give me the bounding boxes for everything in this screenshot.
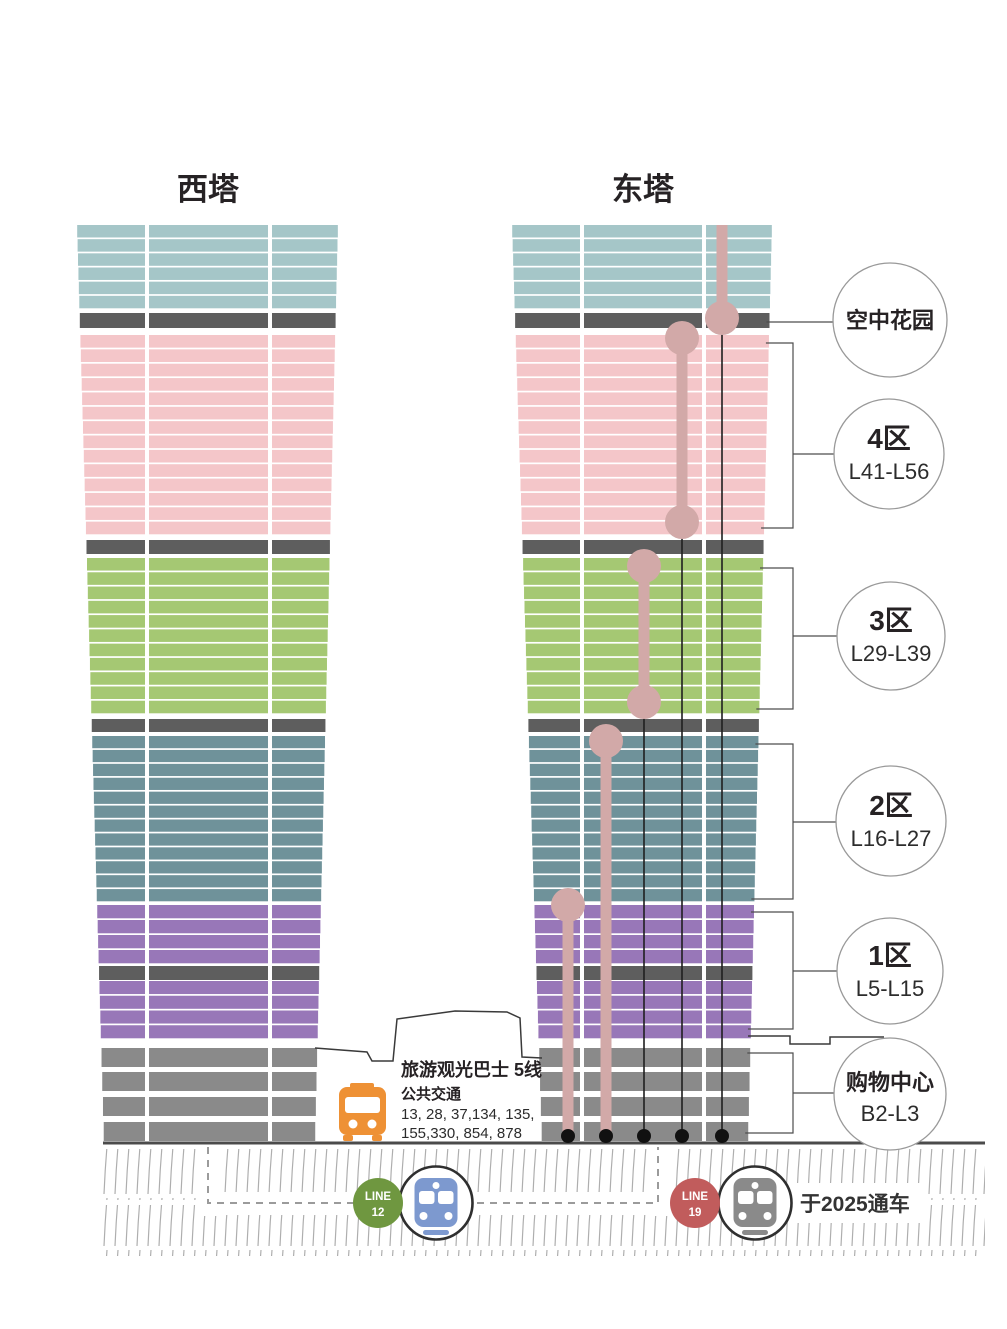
floor-row xyxy=(272,996,318,1009)
sky-garden-band xyxy=(99,966,145,980)
floor-row xyxy=(532,820,580,832)
floor-row xyxy=(100,1011,145,1024)
floor-row xyxy=(83,421,145,434)
floor-row xyxy=(706,736,758,748)
line12-train-icon xyxy=(420,1212,428,1220)
elevator-shaft xyxy=(677,338,688,522)
twin-tower-section-diagram: 西塔 东塔 空中花园 4区 L41-L56 3区 L29-L39 2区 L16-… xyxy=(0,0,1007,1329)
floor-row xyxy=(272,464,332,477)
floor-row xyxy=(78,253,145,265)
floor-row xyxy=(96,875,145,887)
bus-title: 旅游观光巴士 5线 xyxy=(401,1059,542,1080)
floor-row xyxy=(81,364,145,377)
floor-row xyxy=(149,268,268,280)
floor-row xyxy=(706,253,771,265)
floor-row xyxy=(532,833,580,845)
floor-row xyxy=(87,572,145,585)
elevator-stop xyxy=(551,888,585,922)
floor-row xyxy=(91,686,145,699)
floor-row xyxy=(149,349,268,362)
floor-row xyxy=(272,629,328,642)
floor-row xyxy=(81,349,145,362)
floor-row xyxy=(272,905,321,918)
floor-row xyxy=(80,335,145,348)
floor-row xyxy=(272,587,329,600)
floor-row xyxy=(706,778,757,790)
floor-row xyxy=(517,378,580,391)
line19-number: 19 xyxy=(689,1207,702,1219)
floor-row xyxy=(272,239,337,251)
floor-row xyxy=(706,225,772,237)
floor-row xyxy=(84,464,145,477)
floor-row xyxy=(706,629,761,642)
floor-row xyxy=(149,935,268,948)
floor-row xyxy=(272,920,320,933)
west-tower xyxy=(77,225,338,1141)
floor-row xyxy=(272,558,329,571)
floor-row xyxy=(149,1025,268,1038)
floor-row xyxy=(82,378,145,391)
sky-garden-band xyxy=(706,719,759,732)
floor-row xyxy=(272,601,328,614)
floor-row xyxy=(272,847,322,859)
callout-circle-zone1 xyxy=(837,918,943,1024)
ground-dot xyxy=(715,1129,729,1143)
floor-row xyxy=(525,601,580,614)
floor-row xyxy=(149,950,268,963)
floor-row xyxy=(149,981,268,994)
floor-row xyxy=(514,268,580,280)
floor-row xyxy=(706,806,757,818)
floor-row xyxy=(512,225,580,237)
floor-row xyxy=(272,889,321,901)
floor-row xyxy=(272,378,334,391)
podium-band xyxy=(102,1072,145,1091)
floor-row xyxy=(530,778,580,790)
floor-row xyxy=(149,820,268,832)
sky-garden-band xyxy=(149,540,268,554)
floor-row xyxy=(89,615,145,628)
line12-badge xyxy=(353,1178,403,1228)
east-tower-title: 东塔 xyxy=(612,172,675,207)
floor-row xyxy=(90,644,145,657)
podium-band xyxy=(149,1097,268,1116)
callout-mall-label: 购物中心 xyxy=(846,1070,934,1095)
floor-row xyxy=(584,296,702,308)
podium-band xyxy=(149,1048,268,1067)
floor-row xyxy=(149,421,268,434)
floor-row xyxy=(272,686,326,699)
floor-row xyxy=(524,572,580,585)
floor-row xyxy=(706,392,767,405)
floor-row xyxy=(706,792,757,804)
floor-row xyxy=(706,981,752,994)
callout-circles: 空中花园 4区 L41-L56 3区 L29-L39 2区 L16-L27 1区… xyxy=(833,263,947,1150)
floor-row xyxy=(149,644,268,657)
floor-row xyxy=(706,615,762,628)
sky-garden-band xyxy=(80,313,145,328)
bus-icon xyxy=(343,1135,353,1141)
floor-row xyxy=(533,847,580,859)
floor-row xyxy=(272,820,323,832)
floor-row xyxy=(97,905,145,918)
floor-row xyxy=(272,407,333,420)
floor-row xyxy=(706,847,756,859)
elevator-stop xyxy=(665,321,699,355)
floor-row xyxy=(272,253,337,265)
floor-row xyxy=(78,268,145,280)
floor-row xyxy=(149,806,268,818)
line12-train-icon xyxy=(433,1182,440,1189)
floor-row xyxy=(79,282,145,294)
callout-zone2-floors: L16-L27 xyxy=(851,826,932,851)
callout-zone2-name: 2区 xyxy=(869,790,913,821)
floor-row xyxy=(98,920,145,933)
sky-garden-band xyxy=(515,313,580,328)
floor-row xyxy=(584,225,702,237)
line12-train-icon xyxy=(423,1230,449,1235)
floor-row xyxy=(88,587,145,600)
floor-row xyxy=(88,601,145,614)
floor-row xyxy=(519,436,580,449)
floor-row xyxy=(79,296,145,308)
floor-row xyxy=(85,493,145,506)
floor-row xyxy=(96,847,145,859)
bus-icon xyxy=(349,1120,358,1129)
floor-row xyxy=(77,225,145,237)
floor-row xyxy=(149,507,268,520)
callout-zone4-name: 4区 xyxy=(867,423,911,454)
elevator-stop xyxy=(627,549,661,583)
floor-row xyxy=(149,392,268,405)
floor-row xyxy=(149,572,268,585)
podium-band xyxy=(272,1097,316,1116)
floor-row xyxy=(94,806,145,818)
floor-row xyxy=(706,239,771,251)
floor-row xyxy=(706,750,758,762)
floor-row xyxy=(272,644,327,657)
floor-row xyxy=(526,658,580,671)
podium-band xyxy=(706,1097,749,1116)
floor-row xyxy=(272,450,332,463)
callout-zone1-floors: L5-L15 xyxy=(856,976,925,1001)
floor-row xyxy=(706,764,758,776)
floor-row xyxy=(523,558,580,571)
line19-train-icon xyxy=(757,1191,773,1204)
floor-row xyxy=(149,587,268,600)
floor-row xyxy=(93,778,145,790)
floor-row xyxy=(149,996,268,1009)
floor-row xyxy=(520,464,580,477)
floor-row xyxy=(706,522,764,535)
zone-bracket xyxy=(745,1053,793,1133)
floor-row xyxy=(149,889,268,901)
floor-row xyxy=(97,889,145,901)
elevator-stop xyxy=(665,505,699,539)
callout-mall-floors: B2-L3 xyxy=(861,1101,920,1126)
metro-note: 于2025通车 xyxy=(800,1192,910,1216)
floor-row xyxy=(533,861,580,873)
floor-row xyxy=(272,268,337,280)
floor-row xyxy=(149,875,268,887)
floor-row xyxy=(584,253,702,265)
floor-row xyxy=(272,392,334,405)
floor-row xyxy=(272,349,335,362)
sky-garden-band xyxy=(86,540,145,554)
podium-outline-center xyxy=(315,1011,542,1061)
ground-dot xyxy=(637,1129,651,1143)
callout-circle-zone2 xyxy=(836,766,946,876)
floor-row xyxy=(272,615,328,628)
line12-train-icon xyxy=(438,1191,454,1204)
floor-row xyxy=(513,239,580,251)
floor-row xyxy=(149,905,268,918)
floor-row xyxy=(706,820,756,832)
floor-row xyxy=(272,1025,318,1038)
ground-dot xyxy=(675,1129,689,1143)
floor-row xyxy=(272,792,324,804)
floor-row xyxy=(518,392,580,405)
floor-row xyxy=(91,701,145,714)
floor-row xyxy=(149,522,268,535)
sky-garden-band xyxy=(149,966,268,980)
floor-row xyxy=(524,587,580,600)
floor-row xyxy=(706,644,761,657)
floor-row xyxy=(706,464,766,477)
floor-row xyxy=(149,792,268,804)
floor-row xyxy=(149,672,268,685)
floor-row xyxy=(90,672,145,685)
floor-row xyxy=(90,658,145,671)
floor-row xyxy=(272,507,331,520)
floor-row xyxy=(706,335,769,348)
floor-row xyxy=(706,436,766,449)
floor-row xyxy=(521,493,580,506)
floor-row xyxy=(272,282,336,294)
floor-row xyxy=(584,268,702,280)
callout-sky-garden-label: 空中花园 xyxy=(846,308,934,333)
floor-row xyxy=(706,889,754,901)
floor-row xyxy=(706,920,754,933)
floor-row xyxy=(149,225,268,237)
floor-row xyxy=(706,672,760,685)
floor-row xyxy=(272,778,324,790)
elevator-stop xyxy=(705,301,739,335)
floor-row xyxy=(94,792,145,804)
floor-row xyxy=(86,507,145,520)
floor-row xyxy=(149,464,268,477)
floor-row xyxy=(584,282,702,294)
bus-routes-1: 13, 28, 37,134, 135, xyxy=(401,1106,534,1123)
floor-row xyxy=(272,764,324,776)
floor-row xyxy=(149,296,268,308)
floor-row xyxy=(149,364,268,377)
floor-row xyxy=(95,820,145,832)
floor-row xyxy=(516,335,580,348)
floor-row xyxy=(706,493,765,506)
floor-row xyxy=(516,349,580,362)
floor-row xyxy=(272,875,322,887)
floor-row xyxy=(272,479,331,492)
sky-garden-band xyxy=(272,313,336,328)
floor-row xyxy=(272,701,326,714)
floor-row xyxy=(706,1025,751,1038)
line19-train-icon xyxy=(738,1191,754,1204)
floor-row xyxy=(706,268,771,280)
floor-row xyxy=(149,601,268,614)
floor-row xyxy=(706,421,767,434)
zone-bracket xyxy=(748,912,793,1029)
podium-band xyxy=(272,1072,316,1091)
podium-band xyxy=(706,1072,750,1091)
floor-row xyxy=(83,407,145,420)
sky-garden-band xyxy=(706,966,752,980)
floor-row xyxy=(519,421,580,434)
floor-row xyxy=(92,736,145,748)
floor-row xyxy=(149,686,268,699)
podium-band xyxy=(149,1122,268,1141)
floor-row xyxy=(272,935,320,948)
floor-row xyxy=(149,558,268,571)
sky-garden-band xyxy=(272,719,325,732)
bus-info: 旅游观光巴士 5线 公共交通 13, 28, 37,134, 135, 155,… xyxy=(401,1059,542,1142)
sky-garden-band xyxy=(149,313,268,328)
podium-band xyxy=(104,1122,145,1141)
floor-row xyxy=(272,225,338,237)
floor-row xyxy=(706,407,767,420)
floor-row xyxy=(149,764,268,776)
bus-icon xyxy=(372,1135,382,1141)
floor-row xyxy=(149,282,268,294)
line12-train-icon xyxy=(445,1212,453,1220)
line19-train-icon xyxy=(752,1182,759,1189)
floor-row xyxy=(706,905,754,918)
line12-number: 12 xyxy=(372,1207,385,1219)
podium-band xyxy=(540,1072,580,1091)
floor-row xyxy=(98,935,145,948)
floor-row xyxy=(83,436,145,449)
floor-row xyxy=(706,364,768,377)
floor-row xyxy=(525,629,580,642)
floor-row xyxy=(706,601,762,614)
floor-row xyxy=(529,736,580,748)
floor-row xyxy=(272,335,335,348)
floor-row xyxy=(78,239,145,251)
floor-row xyxy=(272,736,325,748)
floor-row xyxy=(706,587,762,600)
floor-row xyxy=(149,253,268,265)
floor-row xyxy=(272,833,323,845)
floor-row xyxy=(149,239,268,251)
floor-row xyxy=(93,750,145,762)
floor-row xyxy=(272,572,329,585)
floor-row xyxy=(520,450,580,463)
line19-train-icon xyxy=(742,1230,768,1235)
floor-row xyxy=(100,996,145,1009)
podium-band xyxy=(706,1048,750,1067)
floor-row xyxy=(99,981,145,994)
floor-row xyxy=(272,296,336,308)
floor-row xyxy=(272,750,325,762)
floor-row xyxy=(706,658,760,671)
floor-row xyxy=(149,833,268,845)
sky-garden-band xyxy=(92,719,145,732)
floor-row xyxy=(149,629,268,642)
floor-row xyxy=(706,950,753,963)
floor-row xyxy=(527,672,580,685)
floor-row xyxy=(706,378,768,391)
floor-row xyxy=(515,296,580,308)
floor-row xyxy=(272,436,333,449)
callout-zone1-name: 1区 xyxy=(868,940,912,971)
floor-row xyxy=(96,861,145,873)
floor-row xyxy=(149,750,268,762)
podium-band xyxy=(149,1072,268,1091)
floor-row xyxy=(272,981,319,994)
podium-band xyxy=(539,1048,580,1067)
floor-row xyxy=(706,507,764,520)
floor-row xyxy=(101,1025,145,1038)
floor-row xyxy=(706,861,755,873)
floor-row xyxy=(521,507,580,520)
floor-row xyxy=(99,950,145,963)
sky-garden-band xyxy=(523,540,580,554)
floor-row xyxy=(521,479,580,492)
podium-band xyxy=(272,1048,317,1067)
floor-row xyxy=(706,996,752,1009)
line12-label: LINE xyxy=(365,1191,392,1203)
floor-row xyxy=(272,522,330,535)
floor-row xyxy=(149,436,268,449)
floor-row xyxy=(149,861,268,873)
floor-row xyxy=(89,629,145,642)
floor-row xyxy=(149,378,268,391)
callout-circle-zone3 xyxy=(837,582,945,690)
floor-row xyxy=(272,658,327,671)
floor-row xyxy=(518,407,580,420)
sky-garden-band xyxy=(272,966,319,980)
floor-row xyxy=(525,615,580,628)
callout-circle-zone4 xyxy=(834,399,944,509)
ground-dot xyxy=(561,1129,575,1143)
line19-label: LINE xyxy=(682,1191,709,1203)
line19-train-icon xyxy=(739,1212,747,1220)
elevator-shaft xyxy=(601,741,612,1136)
floor-row xyxy=(530,764,580,776)
floor-row xyxy=(149,701,268,714)
line19-train-icon xyxy=(764,1212,772,1220)
floor-row xyxy=(526,644,580,657)
floor-row xyxy=(149,920,268,933)
floor-row xyxy=(149,450,268,463)
floor-row xyxy=(272,364,334,377)
bus-icon xyxy=(368,1120,377,1129)
callout-zone3-floors: L29-L39 xyxy=(851,641,932,666)
floor-row xyxy=(149,493,268,506)
bus-icon xyxy=(345,1097,380,1113)
floor-row xyxy=(706,479,765,492)
sky-garden-band xyxy=(149,719,268,732)
floor-row xyxy=(149,658,268,671)
floor-row xyxy=(272,950,320,963)
floor-row xyxy=(517,364,580,377)
floor-row xyxy=(533,875,580,887)
floor-row xyxy=(537,996,580,1009)
podium-band xyxy=(103,1097,145,1116)
floor-row xyxy=(522,522,580,535)
floor-row xyxy=(706,450,766,463)
floor-row xyxy=(706,701,759,714)
